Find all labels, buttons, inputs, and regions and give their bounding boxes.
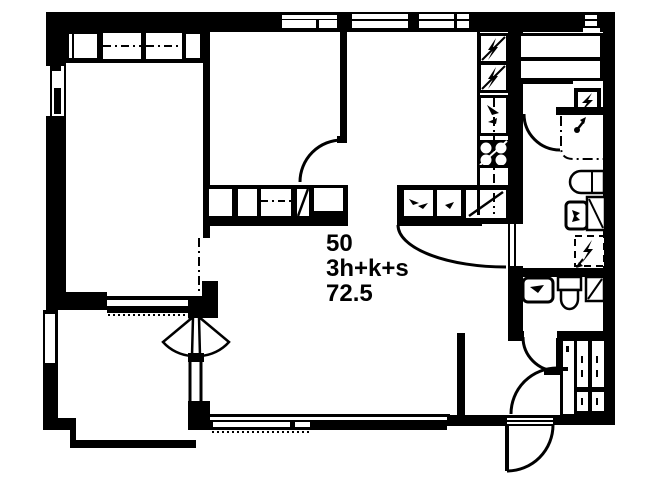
svg-text:50: 50	[326, 230, 353, 257]
svg-text:72.5: 72.5	[326, 280, 373, 307]
svg-text:3h+k+s: 3h+k+s	[326, 255, 409, 282]
